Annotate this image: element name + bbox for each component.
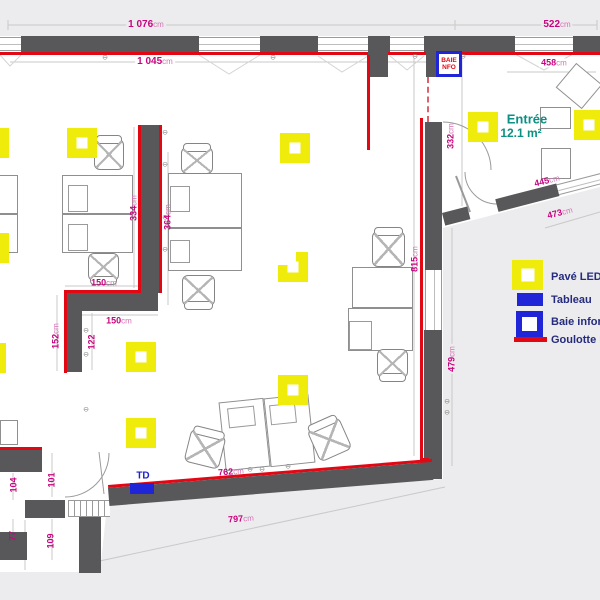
dim-104: 104 (10, 477, 19, 492)
led-panel (278, 375, 308, 405)
alcove-side-wall (79, 517, 101, 573)
legend-tableau-icon (517, 293, 543, 306)
socket-icon: ⊖ (285, 464, 291, 471)
led-panel (468, 112, 498, 142)
top-window (199, 37, 260, 51)
desk-return (269, 403, 297, 426)
socket-icon: ⊖ (444, 410, 450, 417)
goulotte-top (0, 52, 600, 55)
chair (183, 428, 226, 470)
dim-150-a: 150cm (91, 279, 117, 288)
overlap-patch (272, 246, 296, 265)
socket-icon: ⊖ (83, 328, 89, 335)
opening-dashed (427, 77, 429, 122)
dim-815: 815cm (411, 246, 420, 272)
baie-informatique-marker: BAIE NFO (436, 51, 462, 77)
socket-icon: ⊖ (162, 162, 168, 169)
desk-return (170, 240, 190, 263)
dim-top-outer: 1 076cm (126, 20, 166, 30)
dim-top-right: 522cm (541, 20, 572, 30)
desk-return (68, 185, 88, 212)
dim-122: 122 (88, 334, 97, 349)
baie-text-line2: NFO (442, 64, 456, 71)
threshold-hatch (68, 500, 110, 517)
legend-label-led: Pavé LED (551, 271, 600, 283)
exterior-top (0, 0, 600, 36)
top-wall-segment (21, 36, 199, 52)
led-panel (0, 343, 6, 373)
dim-entree-width: 458cm (539, 59, 569, 68)
dim-109: 109 (47, 533, 56, 548)
desk (556, 63, 600, 109)
legend-label-tableau: Tableau (551, 294, 592, 306)
led-panel (0, 233, 9, 263)
right-wall-segment (424, 330, 442, 479)
tableau-td (130, 483, 154, 494)
desk-return (170, 186, 190, 212)
floor-plan: ⊖ ⊖ ⊖ ⊖ ⊖ ⊖ ⊖ ⊖ ⊖ ⊖ ⊖ ⊖ ⊖ ⊖ ⊖ ⊖ TD BAIE … (0, 0, 600, 600)
chair (94, 139, 124, 170)
dim-entree-height: 332cm (447, 123, 456, 149)
chair (377, 349, 408, 378)
desk-return (349, 321, 372, 350)
top-wall-segment (260, 36, 318, 52)
socket-icon: ⊖ (412, 54, 418, 61)
led-panel (0, 128, 9, 158)
dim-364: 364cm (164, 204, 173, 230)
top-wall-segment (368, 36, 390, 52)
socket-icon: ⊖ (83, 407, 89, 414)
room-area-entree: 12.1 m² (500, 126, 541, 140)
socket-icon: ⊖ (259, 467, 265, 474)
top-window (318, 37, 368, 51)
dim-152: 152cm (52, 323, 61, 349)
dim-101: 101 (48, 472, 57, 487)
goulotte-right (420, 118, 423, 465)
right-wall-window (425, 270, 442, 330)
socket-icon: ⊖ (444, 399, 450, 406)
chair (181, 147, 213, 174)
led-panel (574, 110, 600, 140)
socket-icon: ⊖ (102, 55, 108, 62)
dim-top-inner: 1 045cm (135, 57, 175, 67)
cabinet (0, 420, 18, 445)
desk-return (68, 224, 88, 251)
alcove-step-wall (25, 500, 65, 518)
socket-icon: ⊖ (162, 247, 168, 254)
top-window (390, 37, 424, 51)
led-panel (126, 342, 156, 372)
room-name-entree: Entrée (507, 112, 547, 127)
led-panel (67, 128, 97, 158)
legend-led-icon (512, 260, 543, 290)
chair (372, 231, 405, 267)
chair (182, 275, 215, 306)
led-panel (126, 418, 156, 448)
led-panel (280, 133, 310, 163)
dim-334: 334cm (130, 195, 139, 221)
legend-label-baie: Baie inform (551, 316, 600, 328)
desk (0, 175, 18, 214)
legend-goulotte-icon (514, 337, 547, 342)
alcove-wall (0, 450, 42, 472)
legend-baie-icon (516, 311, 543, 337)
desk (352, 267, 413, 308)
top-wall-segment (424, 36, 515, 52)
wall-stub (368, 52, 388, 77)
partition-wall-lower (67, 311, 82, 372)
goulotte-partition-right (159, 125, 162, 293)
dim-150-b: 150cm (106, 317, 132, 326)
partition-wall-horizontal (67, 293, 158, 311)
td-label: TD (136, 471, 149, 482)
top-window (515, 37, 573, 51)
socket-icon: ⊖ (270, 55, 276, 62)
legend-label-goulotte: Goulotte D (551, 334, 600, 346)
socket-icon: ⊖ (83, 352, 89, 359)
socket-icon: ⊖ (162, 130, 168, 137)
socket-icon: ⊖ (247, 467, 253, 474)
partition-wall-vertical (141, 125, 159, 293)
baie-text-line1: BAIE (441, 57, 457, 64)
right-wall-segment (425, 122, 442, 270)
dim-77: 77 (9, 531, 18, 541)
top-wall-segment (573, 36, 600, 52)
goulotte-drop (367, 55, 370, 150)
top-window (0, 37, 21, 51)
dim-479: 479cm (448, 344, 457, 374)
desk-return (227, 406, 256, 429)
goulotte-step-top (64, 290, 141, 293)
goulotte-step-left (64, 293, 67, 373)
